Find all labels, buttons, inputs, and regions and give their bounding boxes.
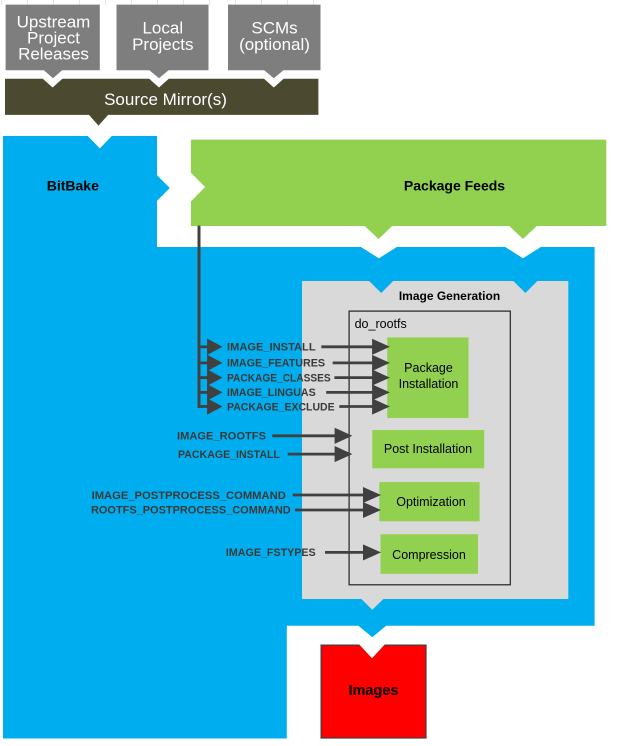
svg-text:Compression: Compression	[392, 548, 466, 562]
svg-text:PACKAGE_CLASSES: PACKAGE_CLASSES	[227, 372, 331, 384]
svg-text:PACKAGE_INSTALL: PACKAGE_INSTALL	[178, 449, 280, 461]
svg-text:IMAGE_POSTPROCESS_COMMAND: IMAGE_POSTPROCESS_COMMAND	[92, 490, 286, 502]
svg-text:Projects: Projects	[132, 35, 193, 54]
svg-text:Optimization: Optimization	[396, 495, 466, 509]
svg-text:IMAGE_ROOTFS: IMAGE_ROOTFS	[177, 431, 266, 443]
svg-text:Package Feeds: Package Feeds	[404, 177, 505, 193]
svg-text:IMAGE_LINGUAS: IMAGE_LINGUAS	[227, 387, 316, 399]
svg-text:Source Mirror(s): Source Mirror(s)	[104, 90, 227, 109]
svg-text:IMAGE_FEATURES: IMAGE_FEATURES	[227, 358, 325, 370]
svg-text:Post Installation: Post Installation	[384, 442, 472, 456]
svg-text:Installation: Installation	[399, 377, 459, 391]
svg-text:Package: Package	[404, 361, 453, 375]
svg-text:ROOTFS_POSTPROCESS_COMMAND: ROOTFS_POSTPROCESS_COMMAND	[91, 505, 291, 517]
svg-text:IMAGE_FSTYPES: IMAGE_FSTYPES	[226, 547, 316, 559]
svg-text:(optional): (optional)	[239, 35, 310, 54]
svg-text:IMAGE_INSTALL: IMAGE_INSTALL	[227, 342, 316, 354]
svg-text:Releases: Releases	[18, 45, 89, 64]
svg-text:do_rootfs: do_rootfs	[355, 317, 407, 331]
svg-text:Images: Images	[349, 683, 399, 699]
svg-text:BitBake: BitBake	[47, 177, 99, 193]
svg-text:Image Generation: Image Generation	[399, 289, 500, 303]
svg-text:PACKAGE_EXCLUDE: PACKAGE_EXCLUDE	[227, 401, 335, 413]
